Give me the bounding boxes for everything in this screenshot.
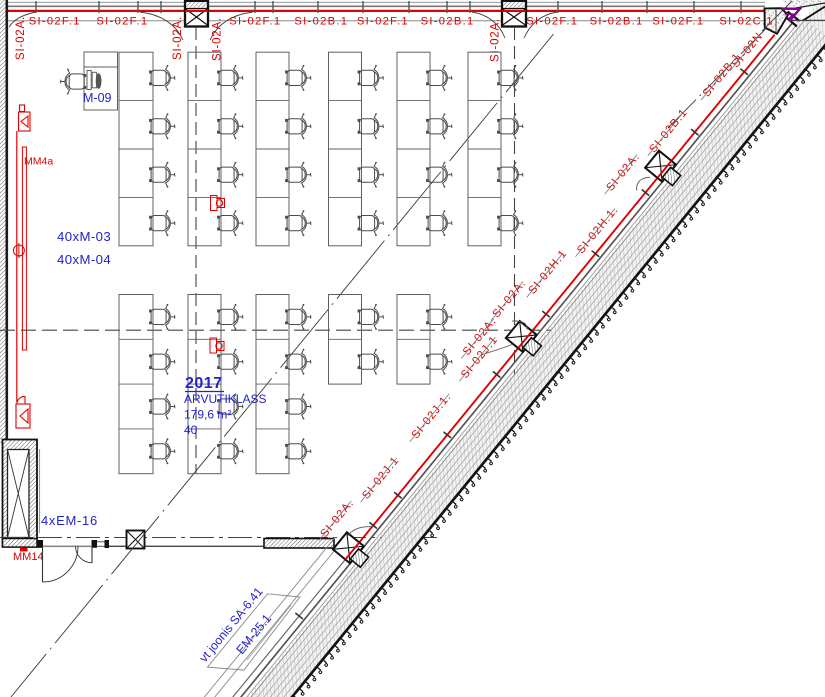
svg-text:MM4a: MM4a: [24, 156, 53, 168]
svg-text:40: 40: [184, 423, 198, 437]
svg-text:SI-02C.1: SI-02C.1: [719, 16, 774, 28]
svg-text:4xEM-16: 4xEM-16: [41, 513, 98, 528]
svg-text:40xM-03: 40xM-03: [57, 229, 111, 244]
svg-text:SI-02B.1: SI-02B.1: [590, 16, 644, 28]
svg-text:SI-02F.1: SI-02F.1: [96, 16, 148, 28]
svg-text:SI-02F.1: SI-02F.1: [357, 16, 409, 28]
svg-text:40xM-04: 40xM-04: [57, 252, 111, 267]
svg-text:SI-02F.1: SI-02F.1: [229, 16, 281, 28]
svg-text:SI-02F.1: SI-02F.1: [652, 16, 704, 28]
svg-text:SI-02A.: SI-02A.: [212, 17, 224, 61]
svg-text:ARVUTIKLASS: ARVUTIKLASS: [184, 392, 266, 406]
svg-text:SI-02A.: SI-02A.: [15, 16, 27, 60]
svg-text:SI-02B.1: SI-02B.1: [294, 16, 348, 28]
svg-text:SI-02A.: SI-02A.: [172, 16, 184, 60]
svg-text:SI-02A.: SI-02A.: [490, 18, 502, 62]
svg-text:MM14: MM14: [13, 551, 44, 563]
svg-text:SI-02B.1: SI-02B.1: [421, 16, 475, 28]
svg-text:179,6 m²: 179,6 m²: [184, 408, 231, 422]
svg-text:SI-02F.1: SI-02F.1: [29, 16, 81, 28]
svg-text:SI-02F.1: SI-02F.1: [526, 16, 578, 28]
svg-text:M-09: M-09: [83, 91, 112, 105]
svg-text:2017: 2017: [185, 375, 223, 392]
